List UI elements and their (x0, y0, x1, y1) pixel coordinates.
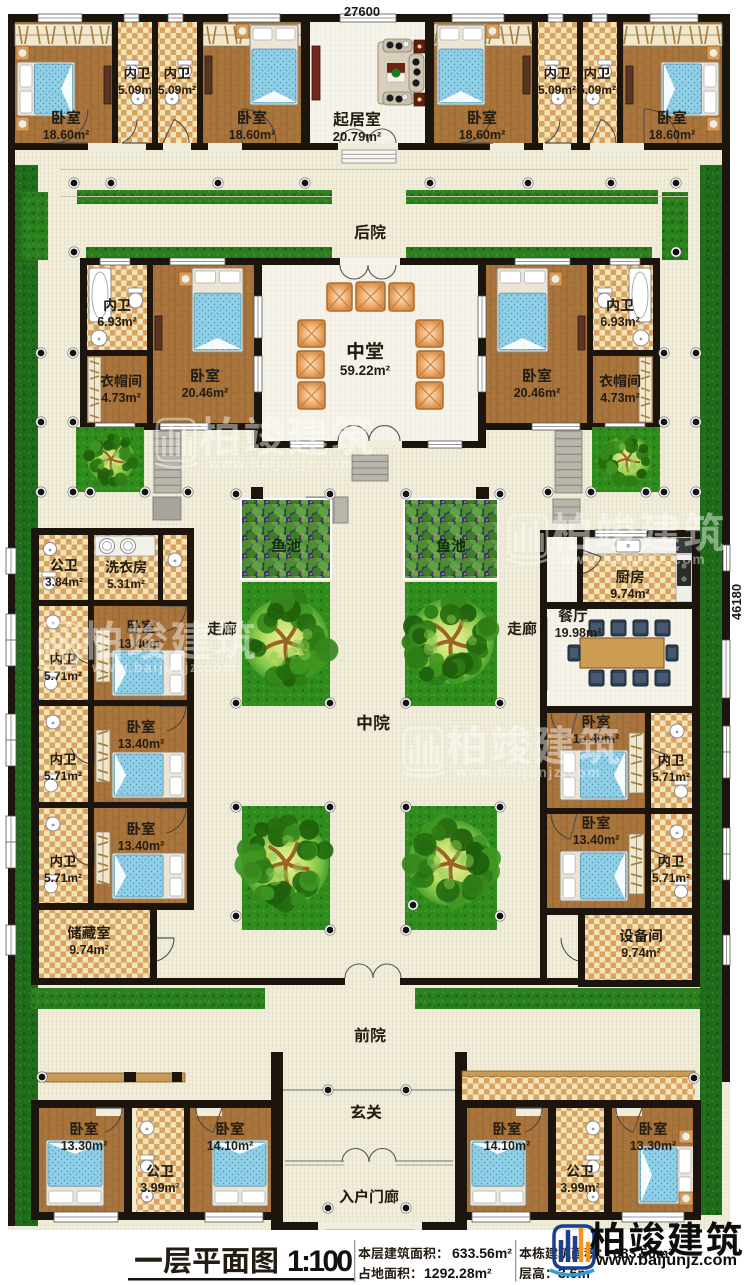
svg-text:1292.28m²: 1292.28m² (424, 1265, 492, 1281)
svg-text:www.baijunjz.com: www.baijunjz.com (208, 456, 354, 471)
svg-text:14.10m²: 14.10m² (484, 1139, 531, 1153)
svg-text:5.09m²: 5.09m² (158, 83, 196, 97)
svg-text:27600: 27600 (344, 4, 380, 19)
svg-text:13.40m²: 13.40m² (118, 737, 165, 751)
svg-text:www.baijunjz.com: www.baijunjz.com (91, 660, 237, 675)
svg-text:20.79m²: 20.79m² (333, 129, 382, 144)
svg-text:www.baijunjz.com: www.baijunjz.com (560, 552, 706, 567)
svg-text:5.71m²: 5.71m² (44, 871, 82, 885)
svg-text:9.74m²: 9.74m² (69, 943, 109, 957)
svg-text:13.30m²: 13.30m² (630, 1139, 677, 1153)
svg-text:1:100: 1:100 (287, 1245, 353, 1278)
svg-text:www.baijunjz.com: www.baijunjz.com (455, 765, 601, 780)
svg-text:9.74m²: 9.74m² (621, 946, 661, 960)
svg-text:5.09m²: 5.09m² (118, 83, 156, 97)
svg-text:6.93m²: 6.93m² (600, 315, 640, 329)
svg-text:59.22m²: 59.22m² (340, 363, 391, 378)
svg-text:18.60m²: 18.60m² (229, 128, 276, 142)
svg-text:4.73m²: 4.73m² (600, 391, 640, 405)
svg-text:633.56m²: 633.56m² (452, 1245, 512, 1261)
svg-text:13.40m²: 13.40m² (573, 833, 620, 847)
svg-text:18.60m²: 18.60m² (649, 128, 696, 142)
svg-text:9.74m²: 9.74m² (610, 587, 650, 601)
svg-text:3.84m²: 3.84m² (45, 575, 83, 589)
svg-text:18.60m²: 18.60m² (43, 128, 90, 142)
svg-text:5.71m²: 5.71m² (652, 770, 690, 784)
svg-text:13.40m²: 13.40m² (118, 839, 165, 853)
svg-text:14.10m²: 14.10m² (207, 1139, 254, 1153)
svg-text:6.93m²: 6.93m² (97, 315, 137, 329)
svg-text:5.09m²: 5.09m² (578, 83, 616, 97)
svg-text:19.98m²: 19.98m² (555, 626, 602, 640)
svg-text:3.99m²: 3.99m² (140, 1181, 180, 1195)
svg-text:46180: 46180 (729, 584, 744, 620)
svg-text:20.46m²: 20.46m² (182, 386, 229, 400)
svg-text:www.baijunjz.com: www.baijunjz.com (595, 1252, 737, 1269)
svg-text:5.71m²: 5.71m² (44, 769, 82, 783)
svg-text:5.09m²: 5.09m² (538, 83, 576, 97)
svg-text:20.46m²: 20.46m² (514, 386, 561, 400)
svg-text:18.60m²: 18.60m² (459, 128, 506, 142)
svg-text:4.73m²: 4.73m² (101, 391, 141, 405)
svg-text:3.99m²: 3.99m² (560, 1181, 600, 1195)
svg-text:5.31m²: 5.31m² (107, 577, 145, 591)
svg-text:13.30m²: 13.30m² (61, 1139, 108, 1153)
svg-text:5.71m²: 5.71m² (652, 871, 690, 885)
